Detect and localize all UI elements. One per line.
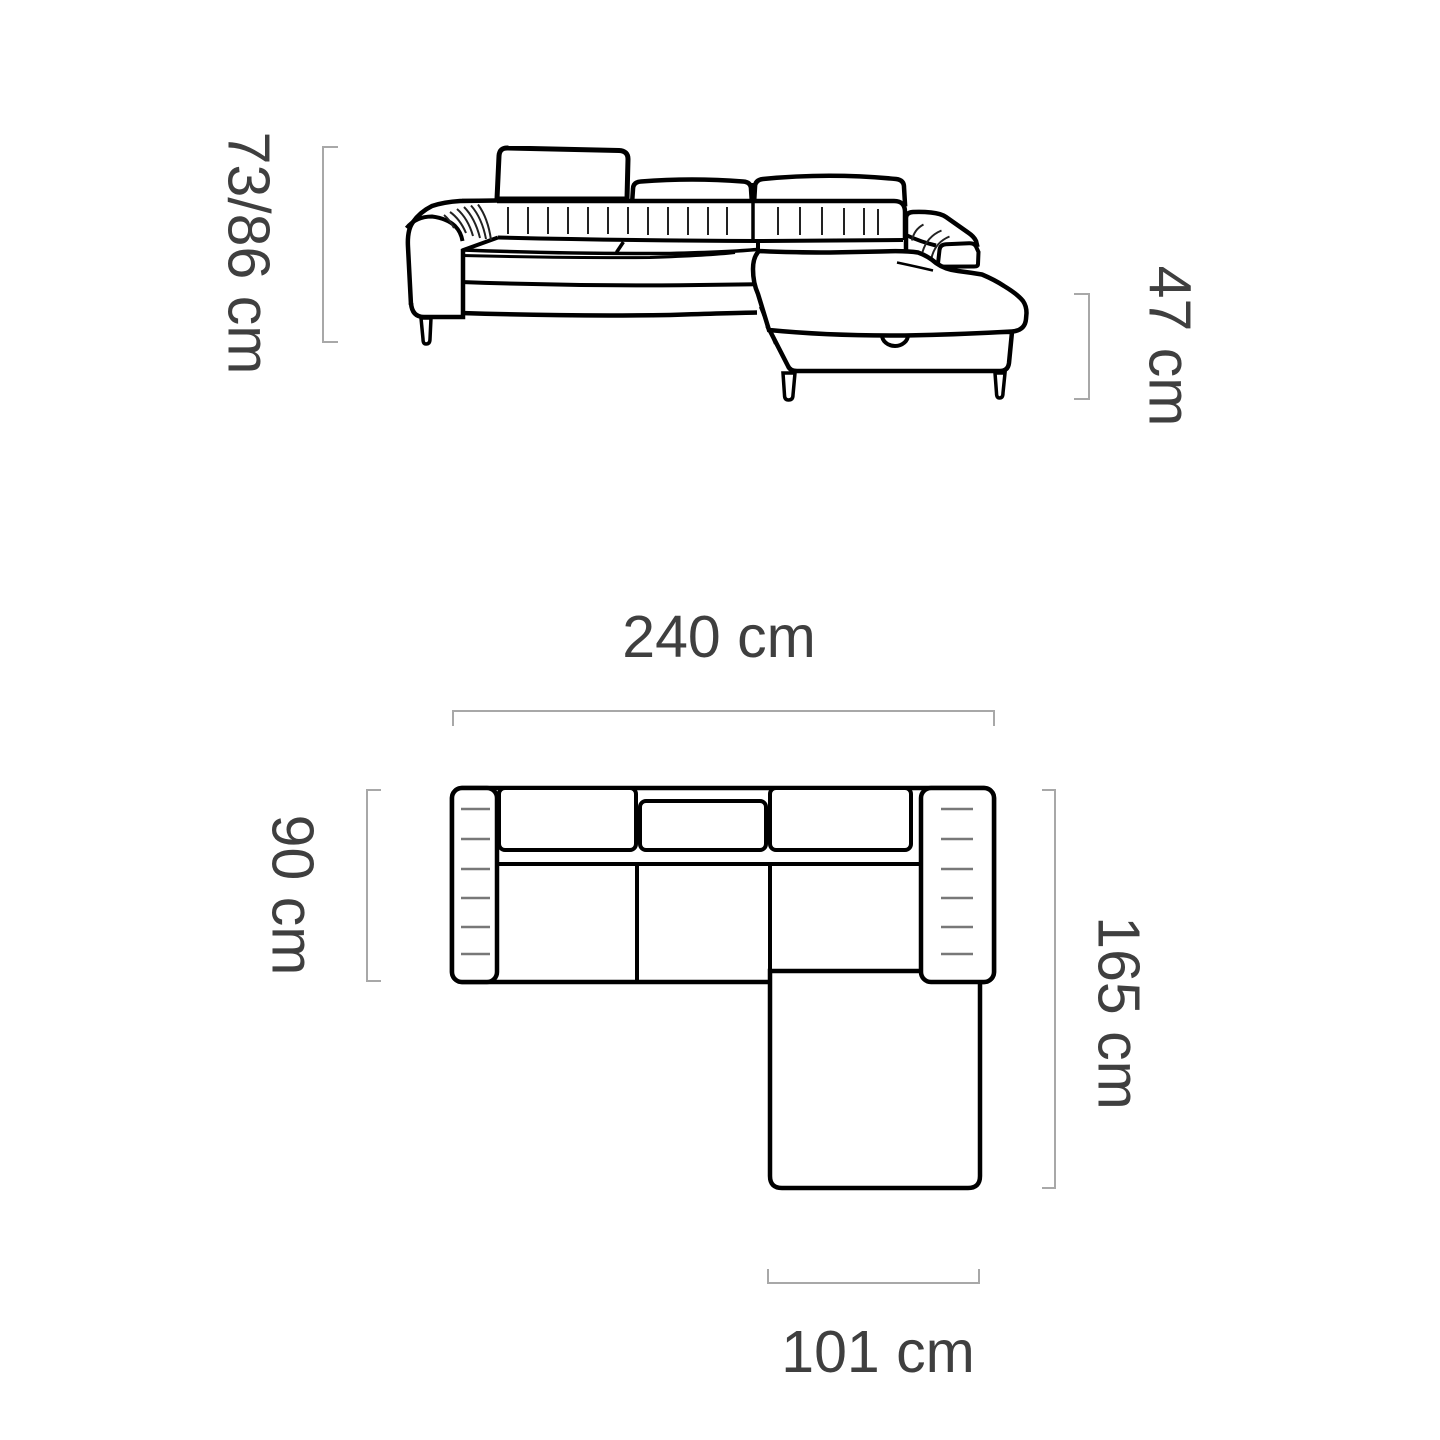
- svg-text:240 cm: 240 cm: [622, 604, 815, 670]
- svg-text:165 cm: 165 cm: [1085, 916, 1151, 1109]
- svg-text:73/86 cm: 73/86 cm: [215, 132, 281, 375]
- svg-text:101 cm: 101 cm: [781, 1319, 974, 1385]
- svg-text:47 cm: 47 cm: [1136, 266, 1202, 427]
- svg-text:90 cm: 90 cm: [259, 815, 325, 976]
